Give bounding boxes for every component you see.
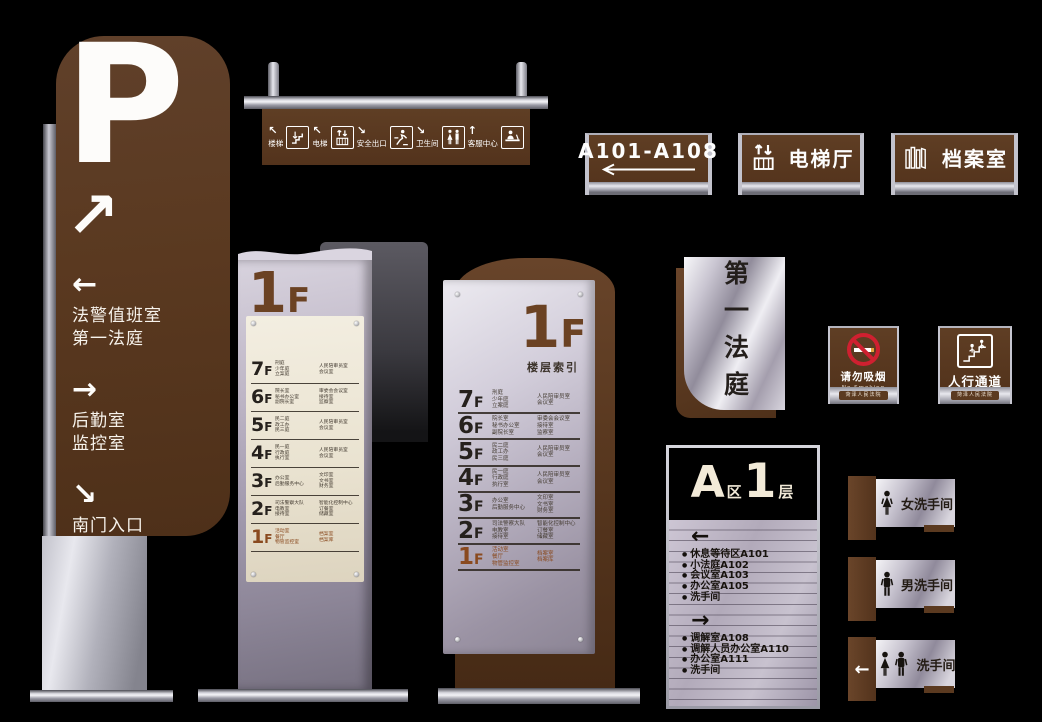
room-name: 会议室 [537,400,580,407]
entry-label: 洗手间 [690,666,720,676]
room-list-left: 办公室后勤服务中心 [275,476,319,488]
right-arrow-icon: → [691,610,709,632]
room-name: 接待室 [537,423,580,430]
floor-number: 5F [458,441,492,464]
room-list-right: 审委会会议室接待室监察室 [319,389,359,406]
left-arrow-icon: ← [691,526,709,548]
courtroom-one-sign: 第一法庭 [684,257,785,410]
directory-rows: 7F刑庭少年庭立案庭人民陪审员室会议室6F院长室秘书办公室副院长室审委会会议室接… [251,356,359,552]
destination-label: 第一法庭 [72,328,162,351]
bullet-icon: ● [682,668,687,674]
directory-row: 1F活动室餐厅物管监控室档案室档案库 [458,545,580,571]
womens-restroom-sign: 女洗手间 [876,479,955,527]
room-list: ●休息等待区A101●小法庭A102●会议室A103●办公室A105●洗手间 [682,550,813,603]
restroom-direction-sign: 洗手间 [876,640,955,688]
directory-row: 3F办公室后勤服务中心文印室文书室财务室 [458,493,580,519]
room-name: 秘书办公室 [492,423,537,430]
direction-group: →后勤室监控室 [72,375,162,456]
hanging-sign-item: ↘卫生间 [416,125,465,149]
room-name: 行政庭 [492,475,537,482]
entry-label: 调解室A108 [690,634,749,644]
room-name: 活动室 [492,547,537,554]
room-list-left: 活动室餐厅物管监控室 [492,547,537,567]
room-name: 监察室 [537,430,580,437]
room-name: 人民陪审员室 [537,472,580,479]
room-name: 副院长室 [275,400,319,406]
service-desk-icon [501,126,524,149]
room-list-right: 档案室档案库 [319,532,359,544]
room-list-right: 人民陪审员室会议室 [537,446,580,459]
floor-number: 1 [248,266,287,322]
directory-entry: ●办公室A105 [682,582,813,593]
room-list-left: 民二庭政工办民三庭 [275,417,319,434]
directory-entry: ●调解室A108 [682,634,813,645]
left-arrow-icon [600,163,698,176]
room-name: 立案庭 [492,403,537,410]
room-name: 财务室 [537,508,580,515]
parking-totem-sign: P ↗ ←法警值班室第一法庭→后勤室监控室↘南门入口 [56,36,230,536]
totem-column [42,536,147,690]
floor-index-subtitle: 楼层索引 [513,359,593,375]
hanging-sign-item: ↖电梯 [313,125,354,149]
restroom-sign-tab [924,525,954,532]
room-name: 执行室 [275,456,319,462]
stairs-icon [286,126,309,149]
directory-row: 5F民二庭政工办民三庭人民陪审员室会议室 [458,440,580,466]
bullet-icon: ● [682,647,687,653]
directory-entry: ●休息等待区A101 [682,550,813,561]
room-list-right: 智能化控制中心订餐室储藏室 [319,501,359,518]
directory-row: 4F民一庭行政庭执行室人民陪审员室会议室 [251,440,359,468]
courtroom-name: 第一法庭 [717,260,753,408]
floor-number: 6F [458,415,492,438]
directory-row: 3F办公室后勤服务中心文印室文书室财务室 [251,468,359,496]
destination-lines: 南门入口 [72,515,162,538]
bullet-icon: ● [682,657,687,663]
entry-label: 办公室A105 [690,582,749,592]
elevator-icon [331,126,354,149]
direction-arrow-icon: ↖ [268,125,277,136]
directory-entry: ●洗手间 [682,666,813,677]
room-name: 会议室 [537,479,580,486]
hanging-rail [244,96,548,109]
sign-strip [742,182,860,195]
destination-label: 卫生间 [416,138,439,149]
room-name: 办公室 [492,498,537,505]
mens-restroom-label: 男洗手间 [901,575,953,594]
direction-arrow-icon: ↘ [72,480,162,510]
room-name: 物管监控室 [275,540,319,546]
restroom-sign-tab [924,606,954,613]
zone-suffix: 区 [727,481,742,502]
destination-label: 电梯 [313,138,328,149]
bullet-icon: ● [682,595,687,601]
room-name: 院长室 [492,416,537,423]
room-list-right: 审委会会议室接待室监察室 [537,416,580,436]
directory-base [438,688,640,704]
room-name: 立案庭 [275,372,319,378]
room-list-right: 智能化控制中心订餐室储藏室 [537,521,580,541]
room-name: 后勤服务中心 [275,482,319,488]
floor-number: 1 [520,298,560,356]
no-smoking-icon [847,333,880,366]
destination-lines: 法警值班室第一法庭 [72,305,162,351]
restroom-sign-bar [848,476,876,540]
bullet-icon: ● [682,636,687,642]
floor-number: 5F [251,416,275,435]
room-name: 接待室 [492,534,537,541]
directory-base [198,689,408,702]
bullet-icon: ● [682,573,687,579]
directory-row: 7F刑庭少年庭立案庭人民陪审员室会议室 [251,356,359,384]
direction-arrow-icon: ↘ [357,125,366,136]
room-list-left: 民一庭行政庭执行室 [275,445,319,462]
floor-number: 4F [251,444,275,463]
floor-directory-totem-small: 1 F 7F刑庭少年庭立案庭人民陪审员室会议室6F院长室秘书办公室副院长室审委会… [238,260,372,690]
room-name: 会议室 [319,454,359,460]
room-name: 审委会会议室 [537,416,580,423]
room-name: 物管监控室 [492,561,537,568]
directory-row: 6F院长室秘书办公室副院长室审委会会议室接待室监察室 [458,414,580,440]
destination-label: 客服中心 [468,138,498,149]
room-name: 接待室 [275,512,319,518]
restroom-sign-bar [848,557,876,621]
elevator-hall-sign: 电梯厅 [738,133,864,195]
direction-arrow-icon: ↘ [416,125,425,136]
room-list-left: 院长室秘书办公室副院长室 [275,389,319,406]
floor-number: 7F [458,389,492,412]
directory-row: 1F活动室餐厅物管监控室档案室档案库 [251,524,359,552]
woman-man-icon [876,651,912,678]
room-name: 会议室 [319,370,359,376]
destination-label: 后勤室 [72,410,162,433]
directory-row: 2F司法警察大队电教室接待室智能化控制中心订餐室储藏室 [458,519,580,545]
destination-label: 监控室 [72,433,162,456]
room-name: 储藏室 [319,512,359,518]
floor-number: 1F [458,546,492,569]
floor-header: 1 F 楼层索引 [513,298,593,375]
room-name: 会议室 [537,452,580,459]
directory-row: 2F司法警察大队电教室接待室智能化控制中心订餐室储藏室 [251,496,359,524]
destination-label: 法警值班室 [72,305,162,328]
totem-base [30,690,173,702]
floor-number: 3F [251,472,275,491]
room-name: 智能化控制中心 [537,521,580,528]
room-list-left: 院长室秘书办公室副院长室 [492,416,537,436]
directory-entry: ●洗手间 [682,592,813,603]
room-list: ●调解室A108●调解人员办公室A110●办公室A111●洗手间 [682,634,813,676]
room-name: 会议室 [319,426,359,432]
bullet-icon: ● [682,563,687,569]
room-name: 政工办 [492,449,537,456]
room-name: 监察室 [319,400,359,406]
room-list-left: 司法警察大队电教室接待室 [492,521,537,541]
floor-directory-totem-large: 1 F 楼层索引 7F刑庭少年庭立案庭人民陪审员室会议室6F院长室秘书办公室副院… [443,280,595,654]
room-list-left: 民二庭政工办民三庭 [492,443,537,463]
room-name: 司法警察大队 [492,521,537,528]
entry-label: 会议室A103 [690,571,749,581]
stairs-people-icon [957,334,993,368]
directory-panel: 7F刑庭少年庭立案庭人民陪审员室会议室6F院长室秘书办公室副院长室审委会会议室接… [246,316,364,582]
room-list-left: 刑庭少年庭立案庭 [492,390,537,410]
archive-room-sign: 档案室 [891,133,1018,195]
floor-number: 1F [251,528,275,547]
court-name-tag: 菏泽人民法院 [839,391,887,400]
room-name: 刑庭 [492,390,537,397]
direction-arrow-icon: ↖ [313,125,322,136]
hanging-sign-item: ↖楼梯 [268,125,309,149]
room-list-left: 办公室后勤服务中心 [492,498,537,511]
hanging-sign-item: ↘安全出口 [357,125,413,149]
directory-row: 7F刑庭少年庭立案庭人民陪审员室会议室 [458,388,580,414]
entry-label: 洗手间 [690,593,720,603]
zone-letter: A [691,461,725,505]
man-icon [878,571,896,598]
restroom-label: 洗手间 [917,655,956,674]
up-right-arrow-icon: ↗ [66,184,120,248]
floor-number: 1 [744,458,777,505]
overhead-hanging-sign: ↖楼梯↖电梯↘安全出口↘卫生间↑客服中心 [262,109,530,165]
floor-number: 2F [251,500,275,519]
room-list-left: 刑庭少年庭立案庭 [275,361,319,378]
womens-restroom-label: 女洗手间 [901,494,953,513]
room-list-right: 档案室档案库 [537,551,580,564]
floor-number: 2F [458,520,492,543]
pedestrian-passage-sign: 人行通道 菏泽人民法院 [938,326,1012,404]
archive-icon [901,141,933,173]
room-name: 后勤服务中心 [492,505,537,512]
bullet-icon: ● [682,584,687,590]
floor-number: 7F [251,360,275,379]
room-name: 文印室 [537,495,580,502]
room-name: 民三庭 [492,456,537,463]
direction-arrow-icon: ← [72,270,162,300]
room-list-left: 司法警察大队电教室接待室 [275,501,319,518]
zone-directory-body: ← ●休息等待区A101●小法庭A102●会议室A103●办公室A105●洗手间… [669,520,817,706]
court-name-tag: 菏泽人民法院 [951,391,999,400]
entry-label: 休息等待区A101 [690,550,769,560]
hanging-post-right [516,62,527,98]
sign-strip [895,182,1014,195]
archive-room-label: 档案室 [942,143,1008,172]
no-smoking-title: 请勿吸烟 [830,369,897,384]
direction-group: ↘南门入口 [72,480,162,538]
directory-rows: 7F刑庭少年庭立案庭人民陪审员室会议室6F院长室秘书办公室副院长室审委会会议室接… [458,388,580,571]
room-name: 档案库 [319,538,359,544]
floor-number: 6F [251,388,275,407]
room-list-right: 人民陪审员室会议室 [537,394,580,407]
room-list-right: 人民陪审员室会议室 [537,472,580,485]
emergency-exit-icon [390,126,413,149]
room-list-right: 人民陪审员室会议室 [319,364,359,376]
zone-a-floor1-directory: A 区 1 层 ← ●休息等待区A101●小法庭A102●会议室A103●办公室… [666,445,820,709]
floor-suffix: 层 [778,481,793,502]
room-list-right: 文印室文书室财务室 [319,473,359,490]
room-name: 执行室 [492,482,537,489]
direction-group: ←法警值班室第一法庭 [72,270,162,351]
room-name: 档案库 [537,557,580,564]
room-name: 储藏室 [537,534,580,541]
restroom-sign-bar: ← [848,637,876,701]
restroom-sign-tab [924,686,954,693]
no-smoking-sign: 请勿吸烟 No Smoking 菏泽人民法院 [828,326,899,404]
woman-icon [878,490,896,517]
room-name: 副院长室 [492,430,537,437]
left-arrow-icon: ← [854,659,869,680]
floor-header: 1 F [248,266,310,322]
sign-strip [589,182,708,195]
hanging-sign-item: ↑客服中心 [468,125,524,149]
room-list-left: 活动室餐厅物管监控室 [275,529,319,546]
direction-arrow-icon: ↑ [468,125,477,136]
room-list-left: 民一庭行政庭执行室 [492,469,537,489]
bullet-icon: ● [682,552,687,558]
floor-number: 4F [458,467,492,490]
toilet-icon [442,126,465,149]
room-list-right: 人民陪审员室会议室 [319,448,359,460]
direction-list: ←法警值班室第一法庭→后勤室监控室↘南门入口 [72,270,162,538]
mens-restroom-sign: 男洗手间 [876,560,955,608]
room-name: 民三庭 [275,428,319,434]
signage-design-board: P ↗ ←法警值班室第一法庭→后勤室监控室↘南门入口 ↖楼梯↖电梯↘安全出口↘卫… [0,0,1042,722]
room-list-right: 人民陪审员室会议室 [319,420,359,432]
destination-label: 南门入口 [72,515,162,538]
directory-row: 6F院长室秘书办公室副院长室审委会会议室接待室监察室 [251,384,359,412]
floor-number: 3F [458,493,492,516]
room-name: 财务室 [319,484,359,490]
destination-lines: 后勤室监控室 [72,410,162,456]
elevator-icon [748,141,780,173]
elevator-hall-label: 电梯厅 [789,143,855,172]
destination-label: 楼梯 [268,138,283,149]
directory-row: 4F民一庭行政庭执行室人民陪审员室会议室 [458,467,580,493]
parking-letter: P [64,23,185,188]
direction-arrow-icon: → [72,375,162,405]
hanging-post-left [268,62,279,98]
room-range-label: A101-A108 [578,139,719,163]
directory-row: 5F民二庭政工办民三庭人民陪审员室会议室 [251,412,359,440]
room-name: 餐厅 [492,554,537,561]
room-list-right: 文印室文书室财务室 [537,495,580,515]
zone-header: A 区 1 层 [669,448,817,520]
entry-label: 办公室A111 [690,655,749,665]
room-range-sign: A101-A108 [585,133,712,195]
destination-label: 安全出口 [357,138,387,149]
